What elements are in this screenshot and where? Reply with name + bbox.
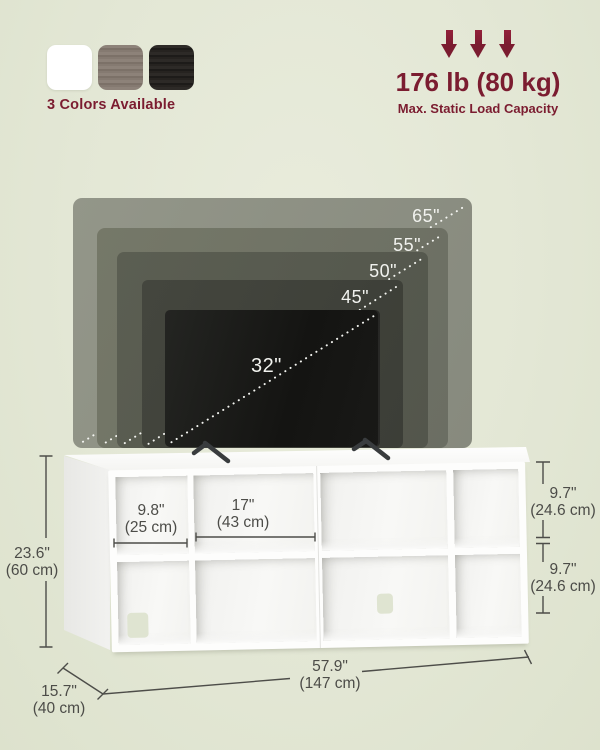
load-capacity-value: 176 lb (80 kg) <box>388 67 568 98</box>
tv-32-inch: 32" <box>165 310 380 447</box>
colors-available-section: 3 Colors Available <box>47 45 194 113</box>
depth-label: 15.7"(40 cm) <box>20 683 98 717</box>
tv-size-label: 45" <box>341 287 369 308</box>
down-arrow-icon <box>470 30 487 58</box>
small-cubby-width-label: 9.8"(25 cm) <box>114 502 188 536</box>
diagonal-dotted-line <box>165 310 380 447</box>
tv-size-label: 50" <box>369 261 397 282</box>
height-dimension-label: 23.6"(60 cm) <box>0 545 64 579</box>
load-capacity-caption: Max. Static Load Capacity <box>388 101 568 116</box>
bottom-cubby-height-label: 9.7"(24.6 cm) <box>526 561 600 595</box>
tv-size-label: 65" <box>412 206 440 227</box>
tv-size-label: 32" <box>251 355 282 378</box>
white-color-swatch-icon <box>47 45 92 90</box>
cubby-top-3 <box>320 470 448 551</box>
load-capacity-section: 176 lb (80 kg) Max. Static Load Capacity <box>388 30 568 116</box>
top-cubby-height-label: 9.7"(24.6 cm) <box>526 485 600 519</box>
cable-hole <box>127 613 149 638</box>
load-arrows <box>388 30 568 59</box>
black-wood-color-swatch-icon <box>149 45 194 90</box>
large-cubby-width-label: 17"(43 cm) <box>206 497 280 531</box>
color-swatches <box>47 45 194 90</box>
total-width-label: 57.9"(147 cm) <box>288 658 372 692</box>
product-infographic: 3 Colors Available 176 lb (80 kg) Max. S… <box>0 0 600 750</box>
down-arrow-icon <box>499 30 516 58</box>
cubby-bottom-2 <box>195 558 317 643</box>
cubby-bottom-4 <box>455 554 522 638</box>
cubby-top-4 <box>453 469 520 548</box>
cable-hole <box>377 593 393 613</box>
gray-wood-color-swatch-icon <box>98 45 143 90</box>
down-arrow-icon <box>441 30 458 58</box>
colors-available-label: 3 Colors Available <box>47 97 194 113</box>
stand-front-face <box>108 462 529 653</box>
